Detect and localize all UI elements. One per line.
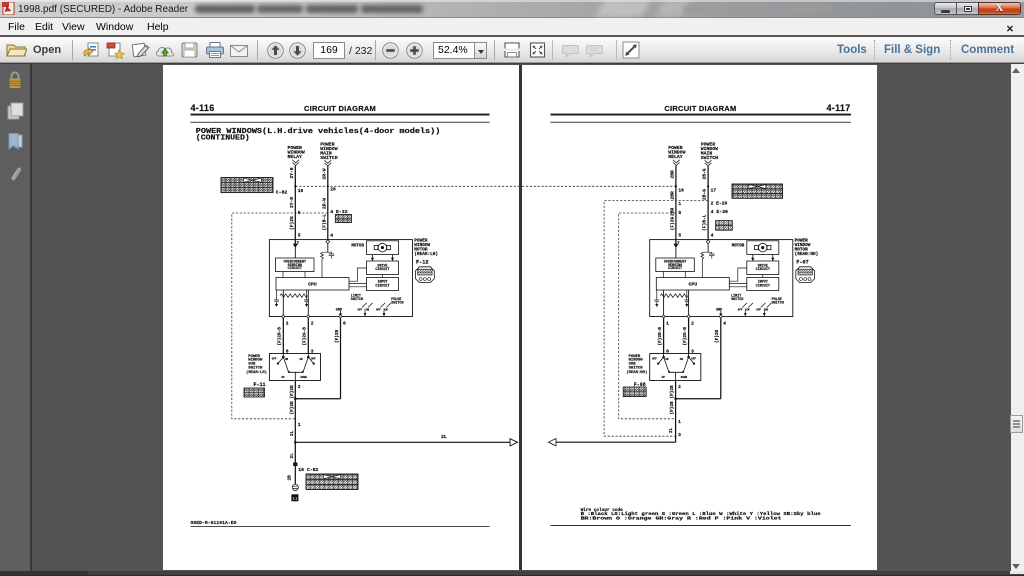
svg-text:4: 4 (330, 232, 333, 238)
svg-text:2L: 2L (441, 434, 447, 440)
svg-text:POWERWINDOWMAINSWITCH: POWERWINDOWMAINSWITCH (320, 141, 337, 161)
svg-text:2B-G: 2B-G (702, 168, 708, 179)
svg-text:(F)2G-B: (F)2G-B (303, 327, 308, 346)
svg-text:1: 1 (678, 419, 681, 425)
svg-text:(F)2R-B: (F)2R-B (278, 327, 283, 346)
svg-text:OFFONOFFON: OFFONOFFON (738, 308, 769, 311)
svg-text:3: 3 (678, 432, 681, 438)
svg-text:2Y-R: 2Y-R (289, 167, 295, 178)
svg-text:19: 19 (298, 188, 304, 194)
svg-text:1: 1 (678, 201, 681, 207)
svg-text:OFFONOFFON: OFFONOFFON (358, 308, 389, 311)
svg-text:POWERWINDOWMOTOR(REAR:LH): POWERWINDOWMOTOR(REAR:LH) (414, 239, 438, 258)
svg-text:(F)2B: (F)2B (290, 385, 295, 399)
svg-text:(F)2B: (F)2B (715, 329, 720, 343)
svg-text:2: 2 (298, 384, 301, 390)
svg-text:(F)2B: (F)2B (290, 401, 295, 415)
svg-text:2BR: 2BR (669, 207, 675, 216)
svg-text:(F)B-L: (F)B-L (702, 214, 708, 231)
svg-text:INPUTCIRCUIT: INPUTCIRCUIT (375, 281, 389, 289)
svg-text:5: 5 (678, 232, 681, 238)
svg-text:2BR: 2BR (669, 170, 675, 179)
svg-text:INPUTCIRCUIT: INPUTCIRCUIT (756, 281, 770, 289)
svg-text:POWERWINDOWSUBSWITCH(REAR:RH): POWERWINDOWSUBSWITCH(REAR:RH) (626, 355, 647, 375)
svg-text:2L: 2L (669, 427, 674, 433)
svg-text:POWERWINDOWMAINSWITCH: POWERWINDOWMAINSWITCH (701, 141, 718, 161)
svg-text:PULSESWITCH: PULSESWITCH (391, 298, 403, 305)
svg-text:CPU: CPU (308, 281, 317, 287)
svg-text:OVERCURRENTSENSINGCIRCUIT: OVERCURRENTSENSINGCIRCUIT (664, 260, 686, 271)
svg-text:2L: 2L (290, 430, 295, 436)
svg-text:F-12: F-12 (416, 260, 428, 266)
svg-text:OVERCURRENTSENSINGCIRCUIT: OVERCURRENTSENSINGCIRCUIT (284, 260, 306, 271)
svg-text:F-07: F-07 (796, 260, 808, 266)
svg-text:CIRCUIT DIAGRAM: CIRCUIT DIAGRAM (304, 104, 376, 113)
svg-text:DRIVECIRCUIT: DRIVECIRCUIT (375, 264, 389, 272)
svg-text:2: 2 (678, 384, 681, 390)
svg-text:F-11: F-11 (254, 382, 266, 388)
svg-text:2R-W: 2R-W (321, 168, 327, 179)
svg-text:POWERWINDOWRELAY: POWERWINDOWRELAY (288, 145, 305, 160)
svg-text:POWERWINDOWMOTOR(REAR:RH): POWERWINDOWMOTOR(REAR:RH) (795, 239, 819, 258)
svg-text:(F)2R-B: (F)2R-B (658, 327, 663, 346)
svg-text:GND: GND (716, 309, 722, 313)
svg-text:11: 11 (292, 497, 298, 502)
svg-text:124: 124 (666, 321, 726, 327)
svg-text:20: 20 (330, 187, 336, 193)
svg-text:DRIVECIRCUIT: DRIVECIRCUIT (756, 264, 770, 272)
svg-text:4 E-39: 4 E-39 (711, 209, 728, 215)
svg-text:MOTOR: MOTOR (351, 245, 364, 249)
svg-text:LIMITSWITCH: LIMITSWITCH (731, 294, 743, 301)
svg-text:17: 17 (711, 188, 717, 194)
svg-text:2B: 2B (288, 475, 293, 481)
svg-text:2B-G: 2B-G (702, 189, 708, 200)
svg-text:POWERWINDOWSUBSWITCH(REAR:LH): POWERWINDOWSUBSWITCH(REAR:LH) (246, 355, 267, 375)
svg-text:5: 5 (678, 210, 681, 216)
svg-text:BR:Brown O :Orange GR:Gray: BR:Brown O :Orange GR:Gray R :Red P :Pin… (581, 517, 783, 522)
svg-text:OFFONONOFFUPDOWN: OFFONONOFFUPDOWN (652, 357, 696, 379)
svg-text:(F)B-L: (F)B-L (321, 214, 327, 231)
svg-text:C-82: C-82 (276, 189, 288, 195)
svg-text:126: 126 (286, 321, 346, 327)
svg-text:4-117: 4-117 (827, 103, 851, 113)
svg-text:OFFONONOFFUPDOWN: OFFONONOFFUPDOWN (272, 357, 316, 379)
svg-text:2 E-29: 2 E-29 (711, 200, 728, 206)
svg-text:5: 5 (298, 232, 301, 238)
svg-text:2BR: 2BR (669, 191, 675, 200)
svg-text:O8ED-M-G1101A-EO: O8ED-M-G1101A-EO (191, 520, 237, 526)
svg-text:(F)2B: (F)2B (670, 385, 675, 399)
svg-text:(CONTINUED): (CONTINUED) (196, 135, 250, 143)
svg-text:PULSESWITCH: PULSESWITCH (772, 298, 784, 305)
svg-text:2Y-R: 2Y-R (289, 197, 295, 208)
svg-text:2L: 2L (290, 453, 295, 459)
svg-text:(F)2G: (F)2G (669, 216, 675, 230)
svg-text:16 C-82: 16 C-82 (298, 467, 318, 473)
svg-text:16: 16 (678, 188, 684, 194)
svg-text:1: 1 (298, 422, 301, 428)
svg-text:(F)2G-B: (F)2G-B (683, 327, 688, 346)
svg-text:LIMITSWITCH: LIMITSWITCH (351, 294, 363, 301)
svg-text:(F)2G: (F)2G (289, 216, 295, 230)
svg-text:(F)2B: (F)2B (670, 401, 675, 415)
svg-text:4: 4 (711, 232, 714, 238)
svg-text:2R-W: 2R-W (321, 198, 327, 209)
svg-text:MOTOR: MOTOR (732, 245, 745, 249)
svg-text:4-116: 4-116 (191, 103, 215, 113)
svg-text:CPU: CPU (688, 281, 697, 287)
svg-text:CIRCUIT DIAGRAM: CIRCUIT DIAGRAM (664, 104, 736, 113)
svg-text:GND: GND (336, 309, 342, 313)
svg-text:POWERWINDOWRELAY: POWERWINDOWRELAY (668, 145, 685, 160)
svg-text:(F)2B: (F)2B (335, 329, 340, 343)
